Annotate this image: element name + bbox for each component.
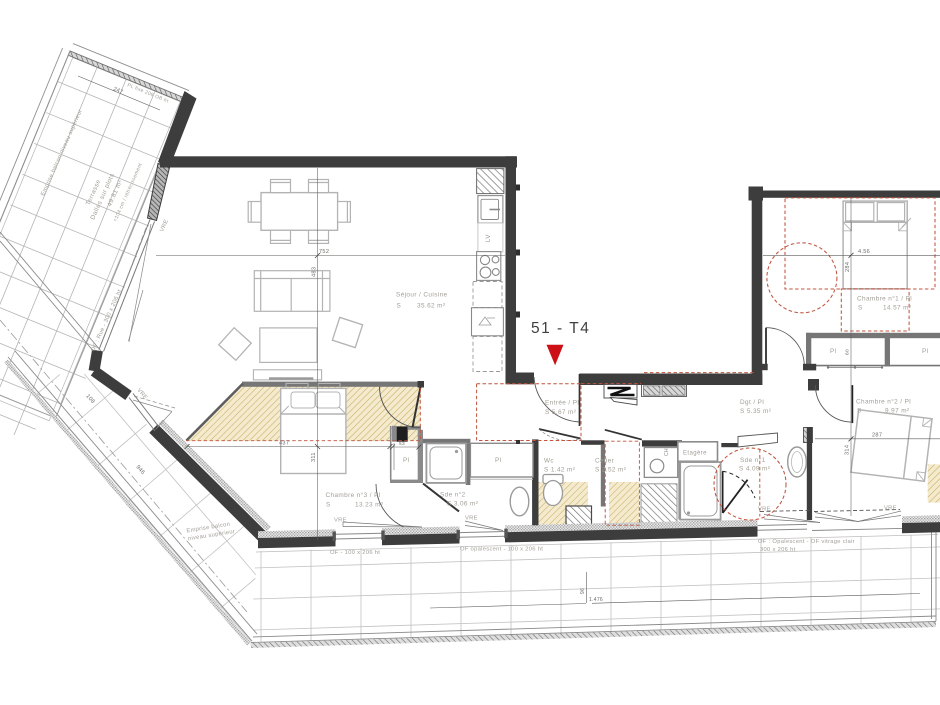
svg-text:Wc: Wc [544, 458, 554, 465]
svg-text:VRE: VRE [465, 516, 478, 522]
svg-text:96: 96 [580, 588, 586, 594]
svg-text:51 - T4: 51 - T4 [531, 320, 590, 337]
svg-text:OF - 100 x 206 ht: OF - 100 x 206 ht [330, 550, 380, 556]
svg-text:284: 284 [845, 262, 851, 272]
svg-text:35.62 m²: 35.62 m² [417, 303, 445, 310]
svg-text:Chambre n°2 / Pl: Chambre n°2 / Pl [856, 398, 911, 406]
svg-text:437: 437 [279, 441, 289, 447]
svg-text:Celier: Celier [595, 458, 615, 465]
svg-text:S: S [858, 305, 863, 312]
svg-text:4.56: 4.56 [858, 249, 870, 255]
svg-text:Dgt / Pl: Dgt / Pl [740, 399, 764, 406]
svg-text:VRE: VRE [758, 507, 771, 513]
svg-text:287: 287 [872, 433, 882, 439]
svg-text:S 5.35 m²: S 5.35 m² [740, 408, 771, 415]
svg-text:OF opalescent - 100 x 206 ht: OF opalescent - 100 x 206 ht [460, 547, 543, 553]
svg-text:Chambre n°3 / Pl: Chambre n°3 / Pl [326, 491, 381, 499]
svg-text:VRE: VRE [884, 506, 897, 512]
svg-text:Sde n°1: Sde n°1 [740, 456, 766, 464]
svg-text:Pl: Pl [922, 348, 928, 355]
svg-text:CH: CH [664, 448, 670, 456]
svg-text:752: 752 [319, 249, 329, 255]
svg-text:Entrée / Pl: Entrée / Pl [545, 400, 579, 407]
svg-text:53: 53 [399, 441, 405, 447]
svg-text:S: S [857, 408, 862, 415]
svg-text:300 x 206 ht: 300 x 206 ht [760, 547, 796, 553]
svg-text:60: 60 [845, 349, 851, 355]
svg-text:9.97 m²: 9.97 m² [885, 408, 909, 415]
svg-text:VRE: VRE [334, 518, 347, 524]
svg-text:Pl: Pl [495, 457, 501, 464]
svg-text:Chambre n°1 / Pl: Chambre n°1 / Pl [857, 295, 912, 303]
svg-text:14.57 m²: 14.57 m² [883, 305, 911, 312]
svg-text:Pl: Pl [830, 348, 836, 355]
svg-text:483: 483 [312, 267, 318, 277]
svg-text:S: S [326, 502, 331, 509]
svg-text:OF : Opalescent - OF vitrage: OF : Opalescent - OF vitrage clair [758, 539, 855, 545]
svg-text:Séjour / Cuisine: Séjour / Cuisine [396, 292, 448, 299]
svg-text:Etagère: Etagère [683, 451, 707, 457]
svg-text:Pl: Pl [403, 457, 409, 464]
svg-text:LV: LV [486, 234, 492, 242]
svg-text:Sde n°2: Sde n°2 [440, 491, 466, 499]
svg-text:S 1.42 m²: S 1.42 m² [544, 467, 575, 474]
svg-text:13.23 m²: 13.23 m² [355, 502, 383, 509]
svg-text:S: S [397, 303, 402, 310]
svg-text:314: 314 [845, 445, 851, 455]
svg-text:311: 311 [311, 452, 317, 462]
svg-text:1.476: 1.476 [589, 597, 603, 603]
svg-text:S 3.06 m²: S 3.06 m² [447, 501, 478, 508]
svg-text:S 2.52 m²: S 2.52 m² [595, 467, 626, 474]
svg-text:S 5.67 m²: S 5.67 m² [545, 409, 576, 416]
svg-text:S 4.09 m²: S 4.09 m² [739, 466, 770, 473]
